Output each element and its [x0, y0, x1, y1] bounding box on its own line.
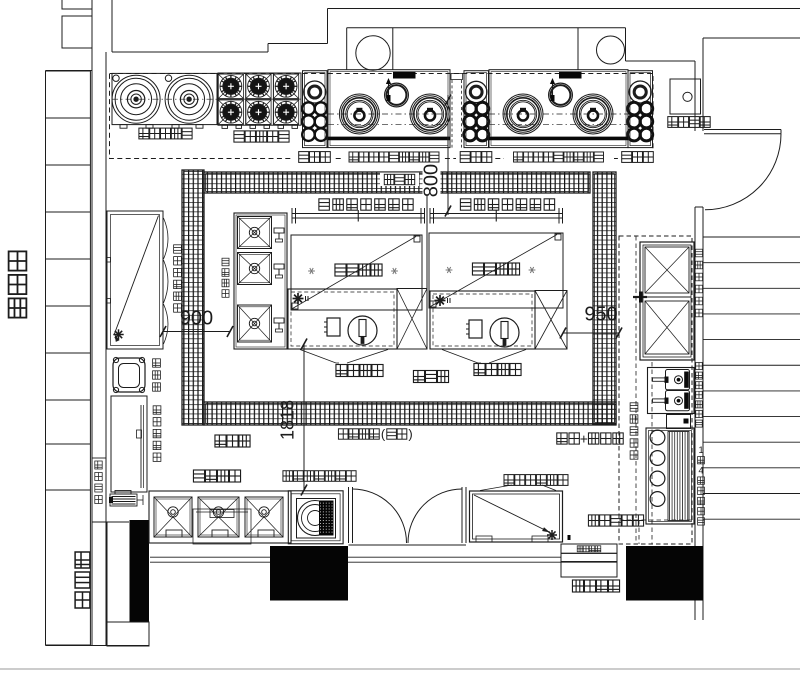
- svg-text:1818: 1818: [278, 400, 298, 440]
- svg-text:950: 950: [584, 304, 617, 326]
- svg-text:+: +: [580, 431, 588, 447]
- svg-text:1: 1: [698, 445, 703, 455]
- svg-text:4: 4: [698, 465, 703, 475]
- svg-text:): ): [408, 427, 412, 442]
- svg-text:900: 900: [180, 308, 213, 330]
- svg-text:(: (: [381, 427, 386, 442]
- svg-text:800: 800: [421, 164, 443, 197]
